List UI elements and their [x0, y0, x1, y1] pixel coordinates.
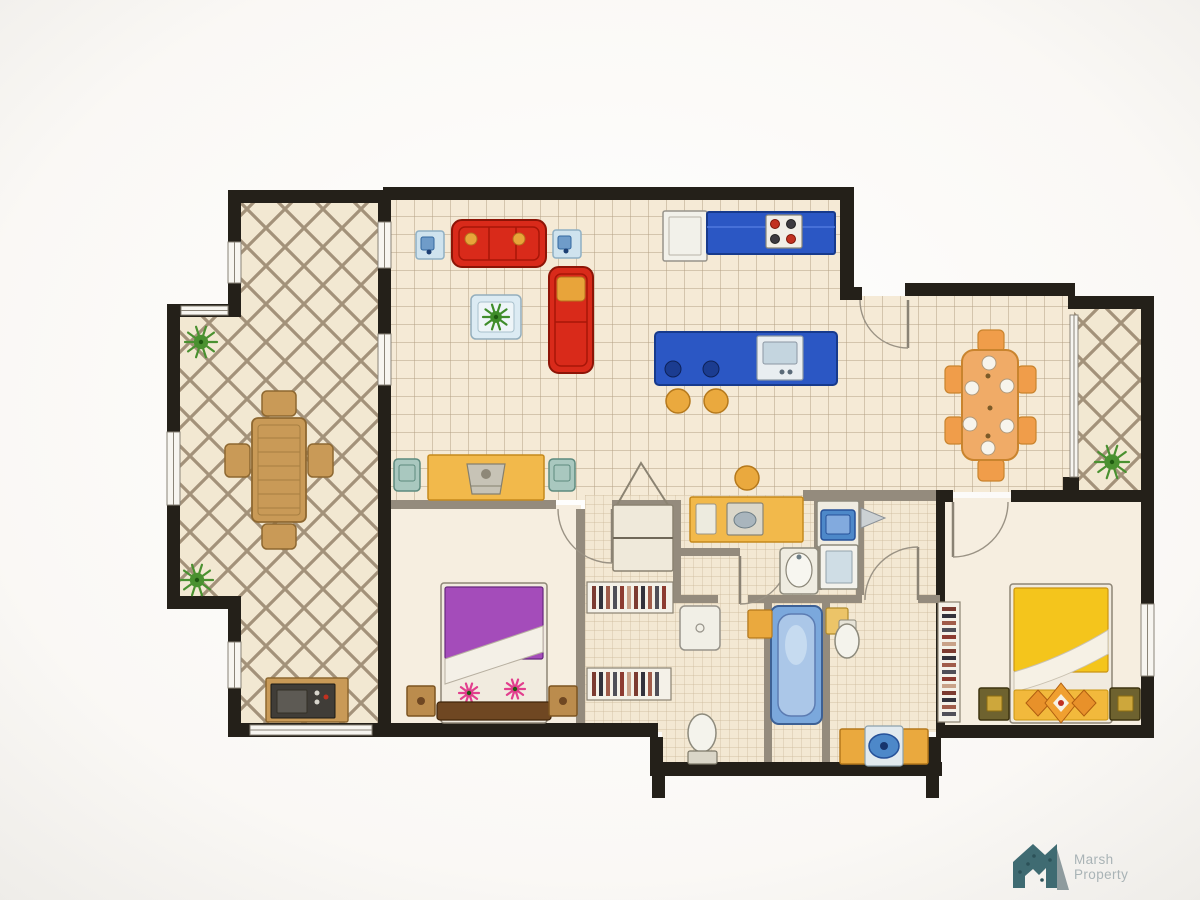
basin-console [780, 548, 818, 594]
vanity [840, 726, 928, 766]
wall-segment [650, 737, 663, 764]
floor-plan: Marsh Property [0, 0, 1200, 900]
bed-purple [437, 583, 551, 723]
wall-segment [167, 505, 180, 598]
bathroom-sink [817, 501, 859, 547]
partition-segment [391, 500, 556, 509]
logo-dot [1018, 870, 1022, 874]
wall-segment [167, 304, 180, 432]
shower-tray [680, 606, 720, 650]
bed-yellow [1010, 584, 1112, 723]
wall-segment [905, 283, 1075, 296]
study-desk [690, 497, 803, 542]
logo-dot [1048, 858, 1052, 862]
tub-side-table [748, 610, 772, 638]
wall-segment [926, 776, 939, 798]
wall-segment [1011, 490, 1074, 502]
wall-segment [228, 688, 241, 725]
wall-segment [378, 385, 391, 723]
bar-stool-2 [704, 389, 728, 413]
partition-segment [678, 548, 740, 556]
wall-segment [228, 598, 241, 642]
desk-chair-right [549, 459, 575, 491]
study-stool [735, 466, 759, 490]
sofa-side [549, 267, 593, 373]
wardrobe-b [587, 668, 671, 700]
kitchen-counter [707, 212, 835, 254]
wall-segment [378, 190, 391, 222]
partition-segment [918, 595, 940, 603]
wall-segment [228, 190, 388, 203]
wall-segment [840, 287, 862, 300]
wall-segment [652, 776, 665, 798]
toilet [688, 714, 717, 764]
bbq-grill [266, 678, 348, 722]
bathtub [771, 606, 822, 724]
sofa-main [452, 220, 546, 267]
wardrobe-a [587, 582, 673, 613]
wall-segment [1141, 490, 1154, 604]
side-table-right [553, 230, 581, 258]
nightstand-yellow-right [1110, 688, 1140, 720]
kitchen-island [655, 332, 837, 385]
washing-machine [820, 545, 858, 589]
nightstand-purple-right [549, 686, 577, 716]
wall-segment [1063, 477, 1079, 490]
partition-segment [803, 490, 936, 501]
side-table-left [416, 231, 444, 259]
wall-segment [378, 268, 391, 334]
wall-segment [1141, 296, 1154, 492]
fridge [663, 211, 707, 261]
logo-dot [1032, 854, 1036, 858]
nightstand-yellow-left [979, 688, 1009, 720]
wall-segment [941, 725, 1154, 738]
logo-text-line2: Property [1074, 867, 1128, 882]
wall-segment [840, 187, 854, 300]
wall-segment [383, 187, 854, 200]
wardrobe-master [938, 602, 960, 722]
coffee-table [471, 295, 521, 339]
partition-segment [673, 595, 718, 603]
logo-text-line1: Marsh [1074, 852, 1114, 867]
wall-segment [928, 737, 941, 764]
logo-dot [1026, 862, 1030, 866]
wall-segment [228, 190, 241, 242]
bidet [835, 620, 859, 658]
desk-chair-left [394, 459, 420, 491]
logo-dot [1040, 878, 1044, 882]
living-desk [428, 455, 544, 500]
partition-segment [748, 595, 862, 603]
bar-stool-1 [666, 389, 690, 413]
nightstand-purple-left [407, 686, 435, 716]
